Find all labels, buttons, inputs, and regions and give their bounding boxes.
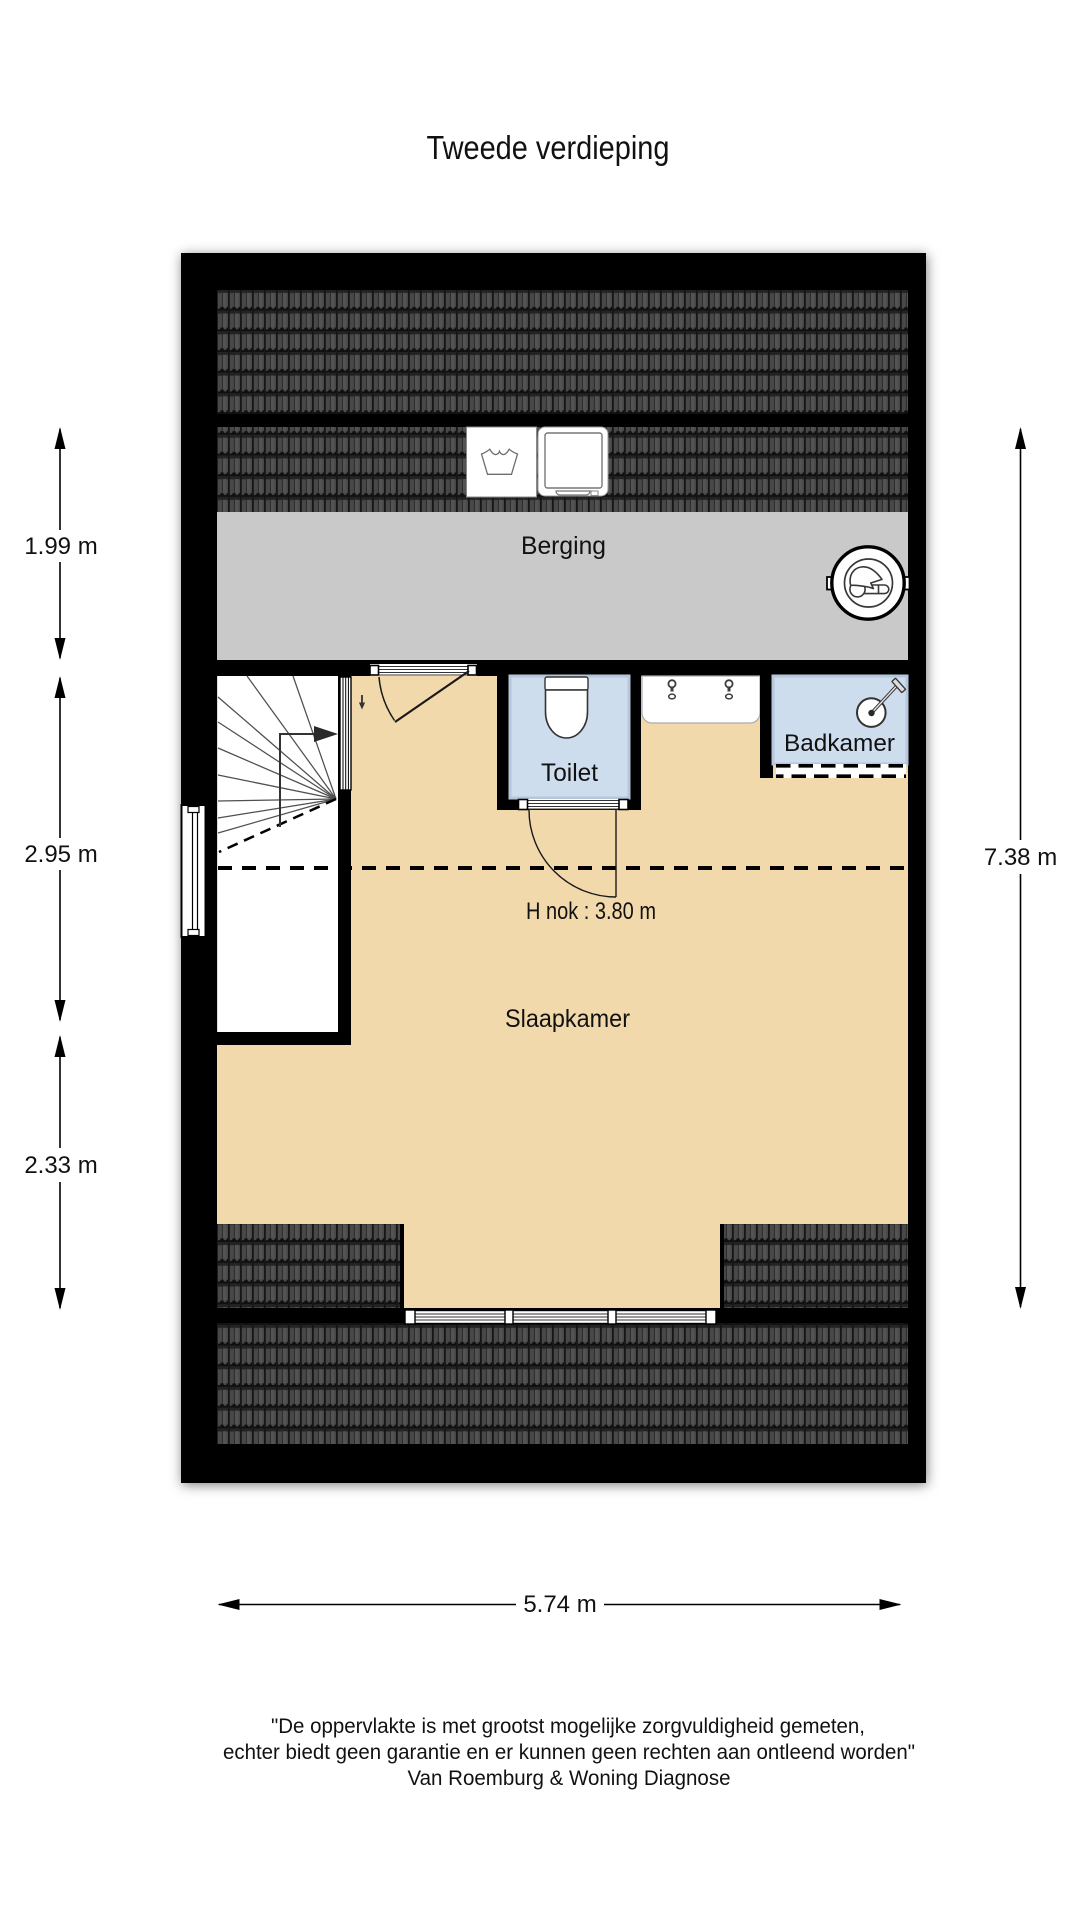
svg-text:Toilet: Toilet [541, 759, 598, 787]
svg-text:5.74 m: 5.74 m [523, 1591, 596, 1618]
svg-text:2.95 m: 2.95 m [24, 841, 97, 868]
svg-text:H nok : 3.80 m: H nok : 3.80 m [526, 898, 656, 925]
svg-text:Slaapkamer: Slaapkamer [505, 1005, 630, 1033]
svg-text:Badkamer: Badkamer [784, 730, 895, 757]
svg-text:Van Roemburg & Woning Diagnose: Van Roemburg & Woning Diagnose [408, 1766, 731, 1790]
svg-text:7.38 m: 7.38 m [984, 844, 1057, 871]
svg-text:2.33 m: 2.33 m [24, 1152, 97, 1179]
svg-text:Tweede verdieping: Tweede verdieping [427, 129, 670, 166]
svg-text:Berging: Berging [521, 532, 606, 560]
svg-text:echter biedt geen garantie en: echter biedt geen garantie en er kunnen … [223, 1740, 915, 1764]
svg-text:"De oppervlakte is met grootst: "De oppervlakte is met grootst mogelijke… [271, 1714, 865, 1738]
svg-text:1.99 m: 1.99 m [24, 533, 97, 560]
